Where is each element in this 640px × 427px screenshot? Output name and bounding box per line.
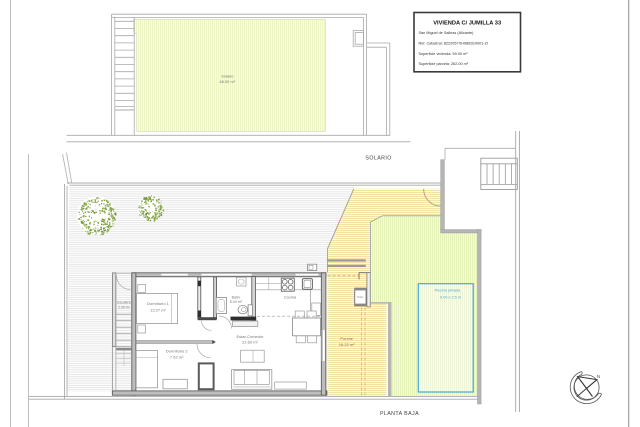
- svg-text:Piscina privada: Piscina privada: [435, 289, 462, 293]
- svg-text:San Miguel de Salinas (Alicant: San Miguel de Salinas (Alicante): [419, 31, 475, 35]
- svg-text:Baño: Baño: [232, 296, 240, 300]
- svg-text:Cocina: Cocina: [284, 295, 297, 300]
- svg-text:5.04 m²: 5.04 m²: [230, 300, 243, 304]
- svg-text:SOLARIO: SOLARIO: [365, 155, 391, 161]
- svg-text:7.62 m²: 7.62 m²: [170, 354, 184, 359]
- svg-text:Solario: Solario: [221, 74, 234, 79]
- svg-text:VIVIENDA C/ JUMILLA 33: VIVIENDA C/ JUMILLA 33: [433, 21, 501, 27]
- svg-text:N: N: [597, 374, 600, 379]
- svg-text:Tend.: Tend.: [357, 295, 364, 299]
- svg-text:16.22 m²: 16.22 m²: [339, 342, 355, 347]
- svg-text:PLANTA BAJA: PLANTA BAJA: [380, 411, 419, 417]
- svg-text:Dormitorio 1: Dormitorio 1: [147, 301, 170, 306]
- svg-text:Dormitorio 2: Dormitorio 2: [166, 348, 189, 353]
- svg-text:13.27 m²: 13.27 m²: [150, 308, 166, 313]
- svg-text:Estar-Comedor: Estar-Comedor: [236, 334, 264, 339]
- svg-text:Ref. Catastral: 8222057XH9862E: Ref. Catastral: 8222057XH9862E0001-ZI: [419, 41, 488, 45]
- svg-text:5.00 x 2.5 m: 5.00 x 2.5 m: [440, 295, 461, 299]
- svg-text:Superficie parcela: 262.00 m²: Superficie parcela: 262.00 m²: [419, 62, 469, 66]
- svg-text:2.90 m²: 2.90 m²: [118, 305, 130, 309]
- svg-text:22.69 m²: 22.69 m²: [242, 340, 258, 345]
- svg-text:48.00 m²: 48.00 m²: [219, 79, 235, 84]
- svg-text:Porche: Porche: [340, 336, 353, 341]
- svg-text:Superficie vivienda: 59.00 m²: Superficie vivienda: 59.00 m²: [419, 52, 469, 56]
- svg-text:Escalera: Escalera: [117, 300, 130, 304]
